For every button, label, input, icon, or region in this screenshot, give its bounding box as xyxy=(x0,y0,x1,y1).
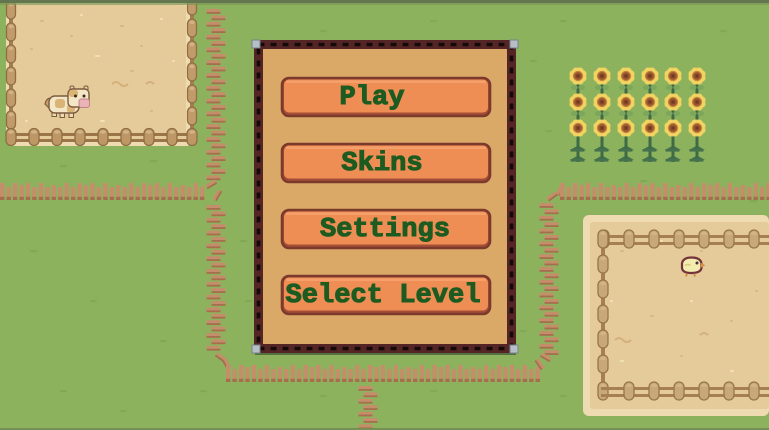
svg-text:Settings: Settings xyxy=(320,215,450,245)
svg-text:Select Level: Select Level xyxy=(286,281,481,311)
svg-text:Play: Play xyxy=(340,83,405,113)
svg-text:Skins: Skins xyxy=(341,149,422,179)
